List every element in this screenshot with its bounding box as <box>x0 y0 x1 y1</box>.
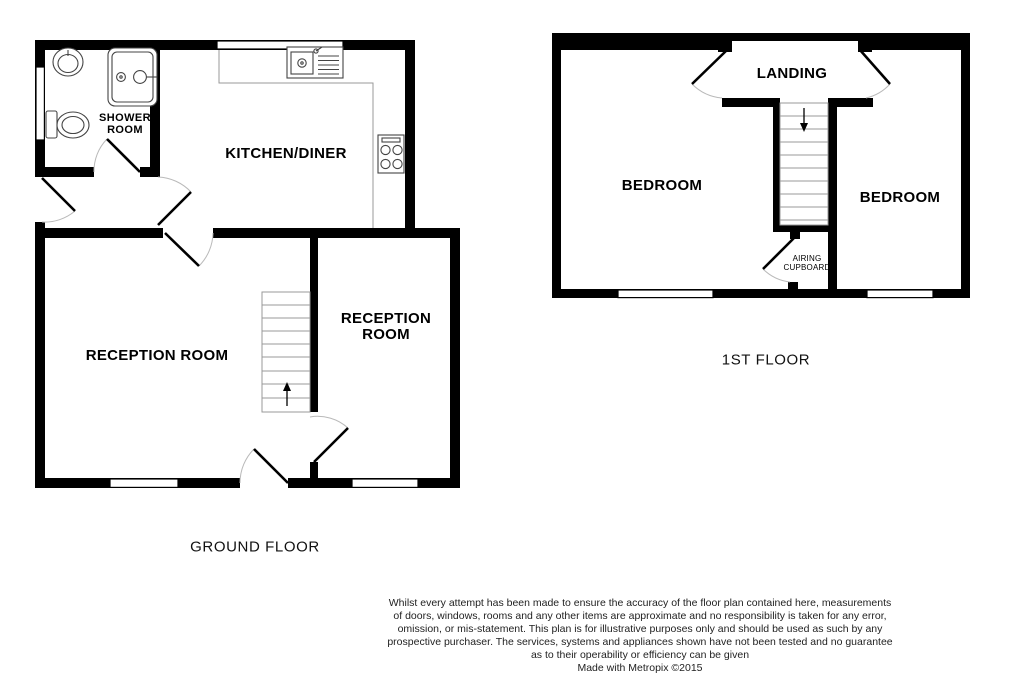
shower-room-label: SHOWER ROOM <box>84 113 166 137</box>
window <box>618 290 713 298</box>
wall-landing-left <box>722 98 780 107</box>
ground-walls <box>35 40 460 488</box>
window <box>867 290 933 298</box>
airing-cupboard-label: AIRING CUPBOARD <box>776 254 838 272</box>
ground-door-gaps <box>35 167 288 488</box>
window <box>352 479 418 487</box>
cupboard-bottom-stub <box>788 282 798 289</box>
wall-top-right <box>858 33 970 50</box>
disclaimer-text: Whilst every attempt has been made to en… <box>360 597 920 675</box>
kitchen-diner-label: KITCHEN/DINER <box>225 146 346 162</box>
wall-right <box>450 228 460 488</box>
wall-top-left <box>552 33 722 50</box>
ground-windows <box>36 41 418 487</box>
ground-floor-plan <box>35 40 460 488</box>
stairs-down <box>780 103 828 225</box>
stairs-up <box>262 292 310 412</box>
bedroom-right-label: BEDROOM <box>860 190 940 206</box>
wall-stair-bottom <box>773 225 837 232</box>
disclaimer-line: as to their operability or efficiency ca… <box>360 649 920 662</box>
floorplan-page: SHOWER ROOM KITCHEN/DINER RECEPTION ROOM… <box>0 0 1024 681</box>
kitchen-door <box>158 177 191 225</box>
wall-mid <box>45 228 460 238</box>
reception-room-left-label: RECEPTION ROOM <box>86 348 229 364</box>
metropix-credit: Made with Metropix ©2015 <box>360 662 920 675</box>
disclaimer-line: prospective purchaser. The services, sys… <box>360 636 920 649</box>
reception-right-door <box>310 416 348 462</box>
wall-left <box>552 33 561 298</box>
wall-kitchen-right <box>405 40 415 238</box>
disclaimer-line: omission, or mis-statement. This plan is… <box>360 623 920 636</box>
bedroom-left-label: BEDROOM <box>622 178 702 194</box>
hob-icon <box>378 135 404 173</box>
front-door <box>240 449 288 483</box>
wall-reception-divider <box>310 228 318 412</box>
first-floor-title: 1ST FLOOR <box>722 352 810 369</box>
basin-icon <box>53 48 83 76</box>
disclaimer-line: of doors, windows, rooms and any other i… <box>360 610 920 623</box>
wall-divider-stub <box>310 462 318 478</box>
wall-right <box>961 33 970 298</box>
reception-room-right-label: RECEPTION ROOM <box>330 311 442 343</box>
toilet-icon <box>46 111 89 138</box>
kitchen-sink-icon <box>287 47 343 78</box>
window <box>36 67 44 140</box>
floorplan-drawing <box>0 0 1024 681</box>
window <box>110 479 178 487</box>
shower-icon <box>108 48 157 106</box>
ground-floor-title: GROUND FLOOR <box>190 539 320 556</box>
wall-stair-left <box>773 98 780 232</box>
landing-label: LANDING <box>757 66 827 82</box>
bedroom-right-door <box>860 50 890 98</box>
bedroom-left-door <box>692 50 727 98</box>
side-entrance-door <box>42 178 75 222</box>
disclaimer-line: Whilst every attempt has been made to en… <box>360 597 920 610</box>
